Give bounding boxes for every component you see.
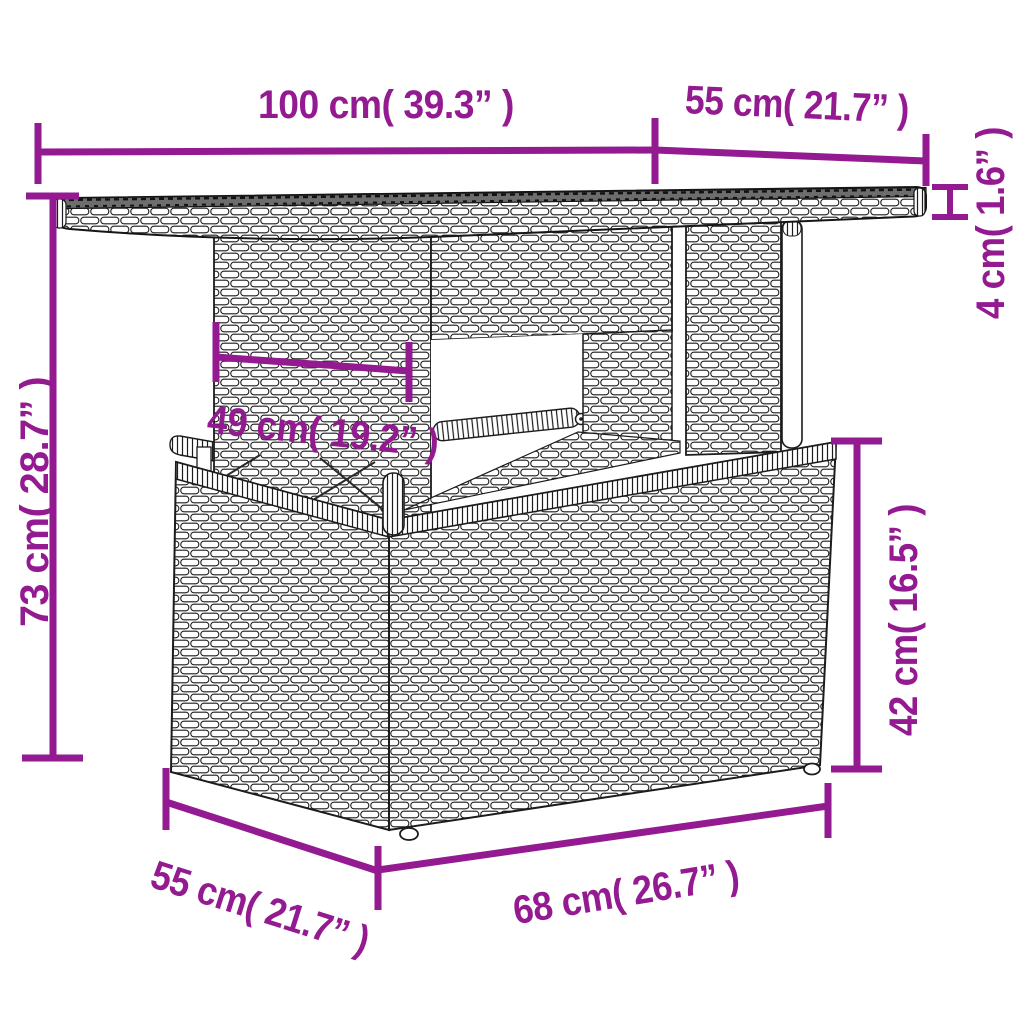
base-corner-cap [383, 473, 404, 535]
table-illustration [52, 187, 926, 840]
product-dimension-diagram: 100 cm( 39.3” ) 55 cm( 21.7” ) 4 cm( 1.6… [0, 0, 1024, 1024]
base-foot-front [400, 828, 418, 840]
dim-label-base-height: 42 cm( 16.5” ) [882, 504, 926, 736]
dim-label-base-depth: 55 cm( 21.7” ) [146, 853, 375, 963]
pedestal-right-panel [686, 218, 781, 455]
base-right-face [389, 442, 836, 830]
pedestal-inner-panel [583, 330, 672, 446]
dim-label-base-width: 68 cm( 26.7” ) [510, 853, 742, 933]
dim-tabletop-depth [655, 134, 926, 186]
pedestal-beam [431, 219, 672, 340]
pedestal-back-leg-cap [783, 221, 801, 236]
dim-tabletop-width [38, 118, 655, 184]
dim-label-table-height: 73 cm( 28.7” ) [13, 377, 57, 627]
garden-table-diagram: 100 cm( 39.3” ) 55 cm( 21.7” ) 4 cm( 1.6… [0, 0, 1024, 1024]
pedestal-back-leg [782, 220, 802, 448]
base-foot-right [804, 764, 820, 775]
dim-base-height [831, 441, 882, 769]
dim-label-tabletop-width: 100 cm( 39.3” ) [258, 83, 514, 127]
tabletop-right-cap [914, 188, 925, 216]
dim-label-tabletop-depth: 55 cm( 21.7” ) [684, 78, 910, 132]
dim-label-tabletop-thickness: 4 cm( 1.6” ) [969, 127, 1013, 319]
dim-tabletop-thickness [932, 187, 968, 217]
